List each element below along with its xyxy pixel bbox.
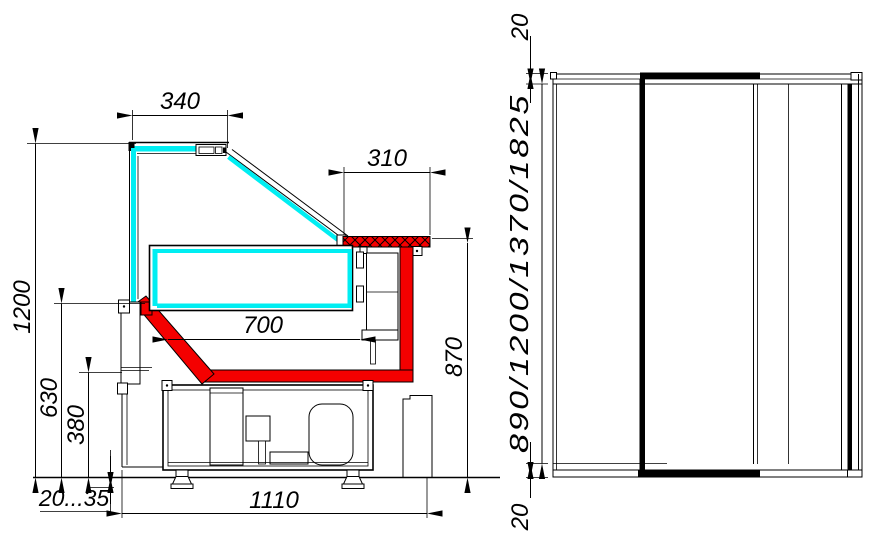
dim-base-depth: 1110 — [249, 487, 299, 514]
canopy — [129, 142, 230, 156]
rear-duct — [353, 247, 400, 364]
dim-counter-depth: 310 — [367, 145, 408, 172]
control-box — [246, 416, 270, 441]
dark-divider — [640, 79, 646, 471]
dim-bottom-panel: 20 — [507, 503, 534, 531]
well-liner-right — [348, 249, 353, 308]
slanted-glass — [226, 150, 348, 247]
dim-foot-range: 20...35 — [38, 485, 110, 511]
machine-compartment — [162, 381, 373, 471]
dim-deck-height: 630 — [36, 377, 63, 418]
drawing-canvas: 1200 630 380 20...35 1110 340 — [0, 0, 877, 551]
lamp-housing — [196, 145, 227, 156]
well-liner-top — [157, 249, 349, 253]
front-view: 20 890/1200/1370/1825 20 — [504, 13, 862, 531]
bottom-red-panel — [201, 370, 413, 382]
rear-pedestal — [403, 396, 432, 478]
dim-base-height: 380 — [63, 404, 90, 445]
well-liner-bottom — [157, 304, 351, 309]
well-liner-left — [153, 249, 158, 306]
right-dark-seam — [848, 84, 853, 470]
technical-drawing: 1200 630 380 20...35 1110 340 — [0, 0, 877, 551]
dim-well-depth: 700 — [243, 312, 284, 339]
dimensions-front: 20 890/1200/1370/1825 20 — [504, 13, 548, 531]
dim-height-variants: 890/1200/1370/1825 — [504, 93, 534, 453]
rear-red-panel — [400, 247, 413, 382]
evaporator-cabinet — [210, 388, 243, 465]
top-dark-strip — [640, 73, 760, 80]
dim-counter-height: 870 — [441, 336, 468, 377]
compressor — [309, 404, 353, 465]
front-glass — [130, 143, 139, 303]
dim-canopy-width: 340 — [160, 88, 201, 115]
display-well — [150, 246, 353, 311]
dim-top-panel: 20 — [507, 13, 534, 41]
section-view: 1200 630 380 20...35 1110 340 — [9, 88, 500, 518]
adjustable-foot-rear — [342, 470, 364, 489]
bottom-dark-strip — [638, 471, 760, 478]
dim-overall-height: 1200 — [9, 280, 36, 334]
adjustable-foot-front — [171, 470, 193, 489]
front-view-body — [553, 74, 862, 477]
counter-hatch — [343, 237, 430, 248]
